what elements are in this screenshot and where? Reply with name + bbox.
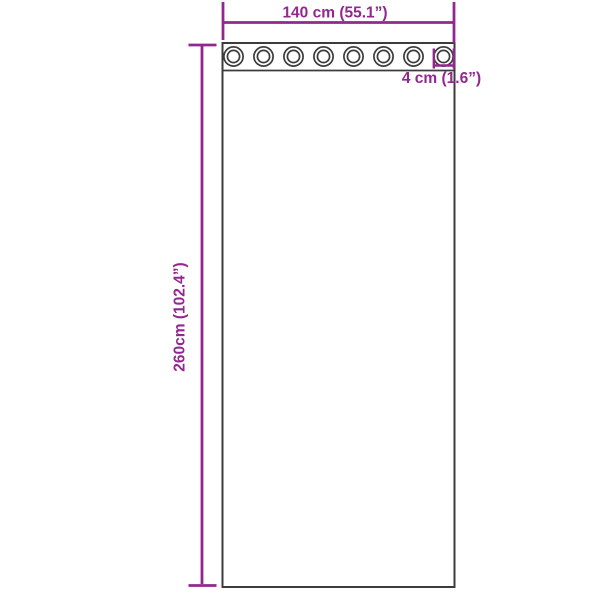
grommet-inner-ring bbox=[377, 50, 389, 62]
curtain-dimension-diagram: 140 cm (55.1”) 260cm (102.4”) 4 cm (1.6”… bbox=[0, 0, 600, 600]
grommet-inner-ring bbox=[347, 50, 359, 62]
grommet-inner-ring bbox=[227, 50, 239, 62]
width-dimension: 140 cm (55.1”) bbox=[223, 2, 454, 43]
grommet-inner-ring bbox=[437, 50, 449, 62]
grommet-inner-ring bbox=[407, 50, 419, 62]
grommet-inner-ring bbox=[287, 50, 299, 62]
grommet-dimension-label: 4 cm (1.6”) bbox=[402, 70, 481, 87]
curtain-panel bbox=[223, 43, 455, 587]
height-dimension: 260cm (102.4”) bbox=[172, 45, 217, 586]
diagram-canvas: 140 cm (55.1”) 260cm (102.4”) 4 cm (1.6”… bbox=[0, 0, 600, 600]
grommet-inner-ring bbox=[317, 50, 329, 62]
height-dimension-label: 260cm (102.4”) bbox=[172, 262, 189, 371]
grommet-inner-ring bbox=[257, 50, 269, 62]
width-dimension-label: 140 cm (55.1”) bbox=[282, 5, 387, 22]
